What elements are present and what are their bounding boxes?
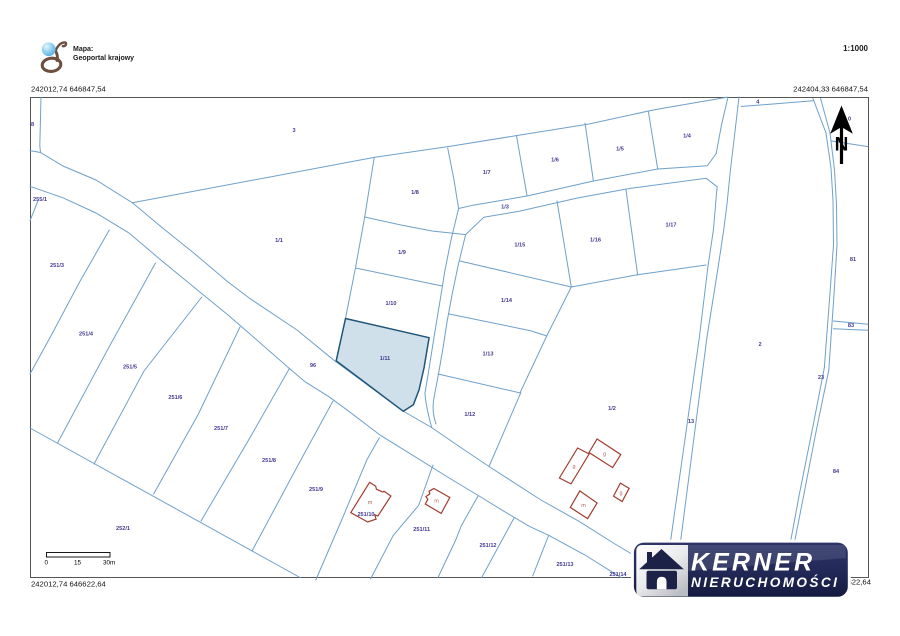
- svg-text:96: 96: [310, 363, 316, 369]
- svg-text:15: 15: [74, 560, 82, 567]
- svg-text:g: g: [603, 452, 606, 458]
- svg-text:1/4: 1/4: [683, 134, 692, 140]
- svg-text:251/7: 251/7: [214, 426, 228, 432]
- svg-text:251/8: 251/8: [262, 458, 276, 464]
- svg-text:84: 84: [833, 469, 840, 475]
- svg-text:KERNER: KERNER: [691, 549, 815, 577]
- svg-text:251/11: 251/11: [413, 527, 430, 533]
- svg-text:1/7: 1/7: [483, 170, 491, 176]
- svg-text:1/10: 1/10: [386, 301, 397, 307]
- svg-text:1/16: 1/16: [590, 238, 601, 244]
- svg-text:0: 0: [848, 117, 851, 123]
- svg-text:252/1: 252/1: [116, 526, 130, 532]
- svg-text:251/5: 251/5: [123, 365, 137, 371]
- svg-text:1/8: 1/8: [411, 190, 419, 196]
- svg-text:Mapa:: Mapa:: [73, 46, 93, 53]
- svg-text:g: g: [572, 464, 575, 470]
- svg-text:242012,74 646622,64: 242012,74 646622,64: [31, 580, 107, 589]
- svg-text:242012,74 646847,54: 242012,74 646847,54: [31, 85, 107, 94]
- svg-text:251/3: 251/3: [50, 263, 64, 269]
- svg-text:0: 0: [45, 560, 49, 567]
- svg-text:251/4: 251/4: [79, 332, 94, 338]
- svg-text:Geoportal krajowy: Geoportal krajowy: [73, 55, 134, 62]
- svg-text:1/11: 1/11: [380, 356, 391, 362]
- svg-text:N: N: [835, 135, 849, 156]
- svg-text:m: m: [434, 499, 439, 505]
- svg-text:13: 13: [688, 419, 694, 425]
- svg-text:23: 23: [818, 375, 824, 381]
- svg-text:1/12: 1/12: [464, 412, 475, 418]
- svg-text:251/14: 251/14: [609, 572, 627, 578]
- svg-text:1/17: 1/17: [666, 223, 677, 229]
- svg-text:1/14: 1/14: [501, 298, 513, 304]
- svg-text:g: g: [619, 491, 622, 497]
- svg-text:81: 81: [850, 257, 856, 263]
- svg-text:242404,33 646847,54: 242404,33 646847,54: [793, 85, 869, 94]
- svg-text:251/10: 251/10: [357, 512, 374, 518]
- svg-text:1/15: 1/15: [514, 242, 525, 248]
- svg-text:8: 8: [31, 122, 34, 128]
- svg-text:251/6: 251/6: [168, 395, 182, 401]
- svg-text:m: m: [368, 500, 373, 506]
- svg-text:m: m: [581, 503, 586, 509]
- svg-text:1/6: 1/6: [551, 158, 559, 164]
- svg-text:83: 83: [848, 323, 854, 329]
- svg-text:251/13: 251/13: [556, 562, 573, 568]
- svg-text:251/12: 251/12: [479, 543, 496, 549]
- svg-text:255/1: 255/1: [33, 197, 47, 203]
- svg-text:1:1000: 1:1000: [843, 44, 868, 53]
- svg-text:1/2: 1/2: [608, 406, 616, 412]
- svg-text:3: 3: [292, 128, 295, 134]
- svg-text:NIERUCHOMOŚCI: NIERUCHOMOŚCI: [691, 575, 839, 590]
- svg-text:1/3: 1/3: [501, 205, 509, 211]
- svg-text:2: 2: [758, 342, 761, 348]
- svg-text:251/9: 251/9: [309, 487, 323, 493]
- svg-text:1/1: 1/1: [275, 238, 283, 244]
- svg-text:1/5: 1/5: [616, 147, 624, 153]
- svg-text:1/13: 1/13: [483, 351, 494, 357]
- svg-text:30m: 30m: [103, 560, 115, 567]
- svg-text:1/9: 1/9: [398, 250, 406, 256]
